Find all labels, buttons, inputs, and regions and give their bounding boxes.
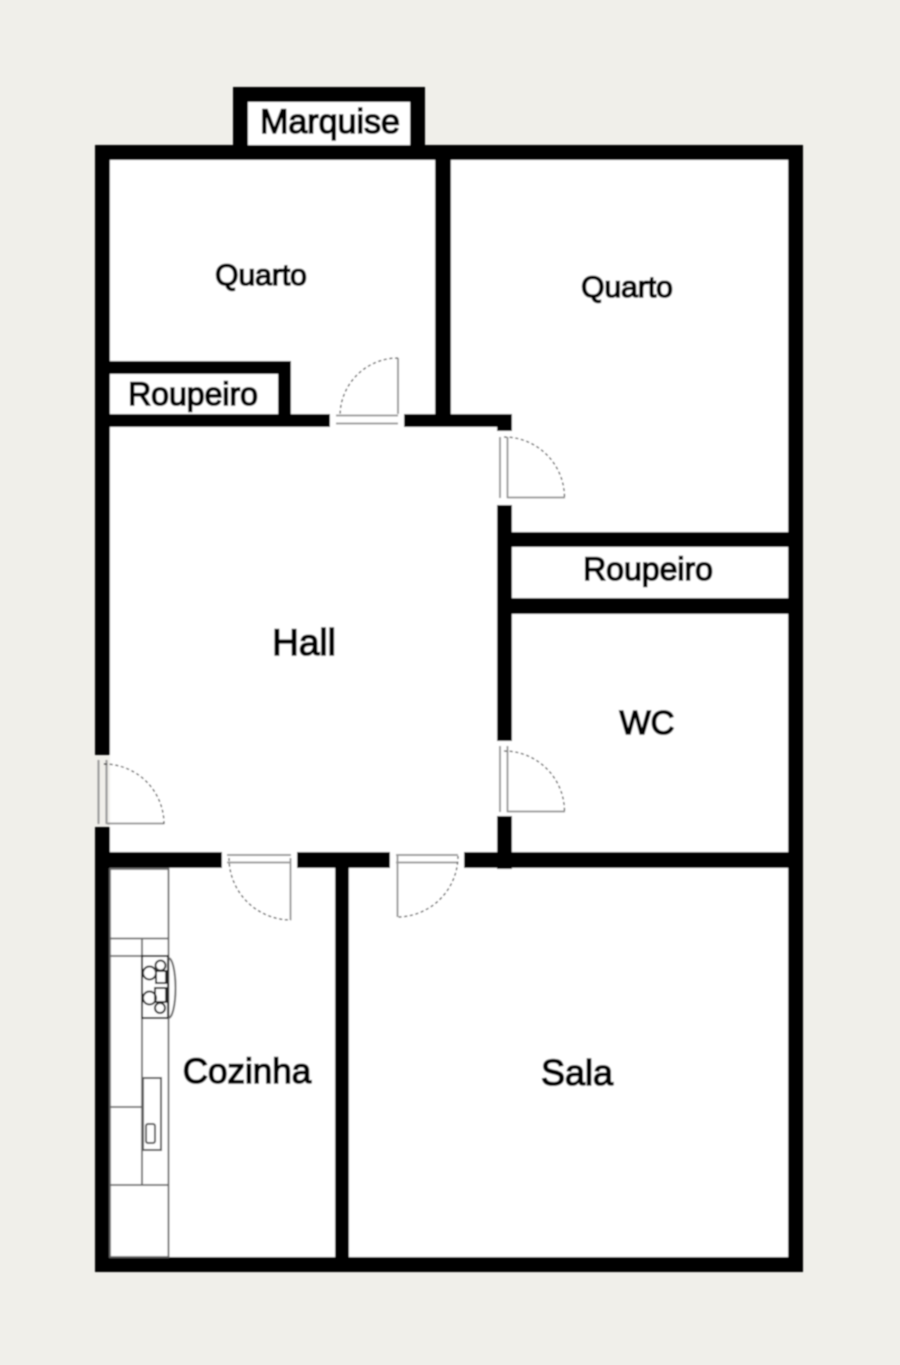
svg-text:Roupeiro: Roupeiro <box>583 551 713 587</box>
svg-text:Marquise: Marquise <box>260 103 400 141</box>
svg-text:Quarto: Quarto <box>215 259 307 292</box>
svg-text:Quarto: Quarto <box>581 271 673 304</box>
svg-text:Roupeiro: Roupeiro <box>128 376 258 412</box>
svg-text:Cozinha: Cozinha <box>183 1052 312 1091</box>
svg-text:Hall: Hall <box>272 622 336 663</box>
svg-text:WC: WC <box>620 704 675 741</box>
svg-text:Sala: Sala <box>541 1052 614 1093</box>
